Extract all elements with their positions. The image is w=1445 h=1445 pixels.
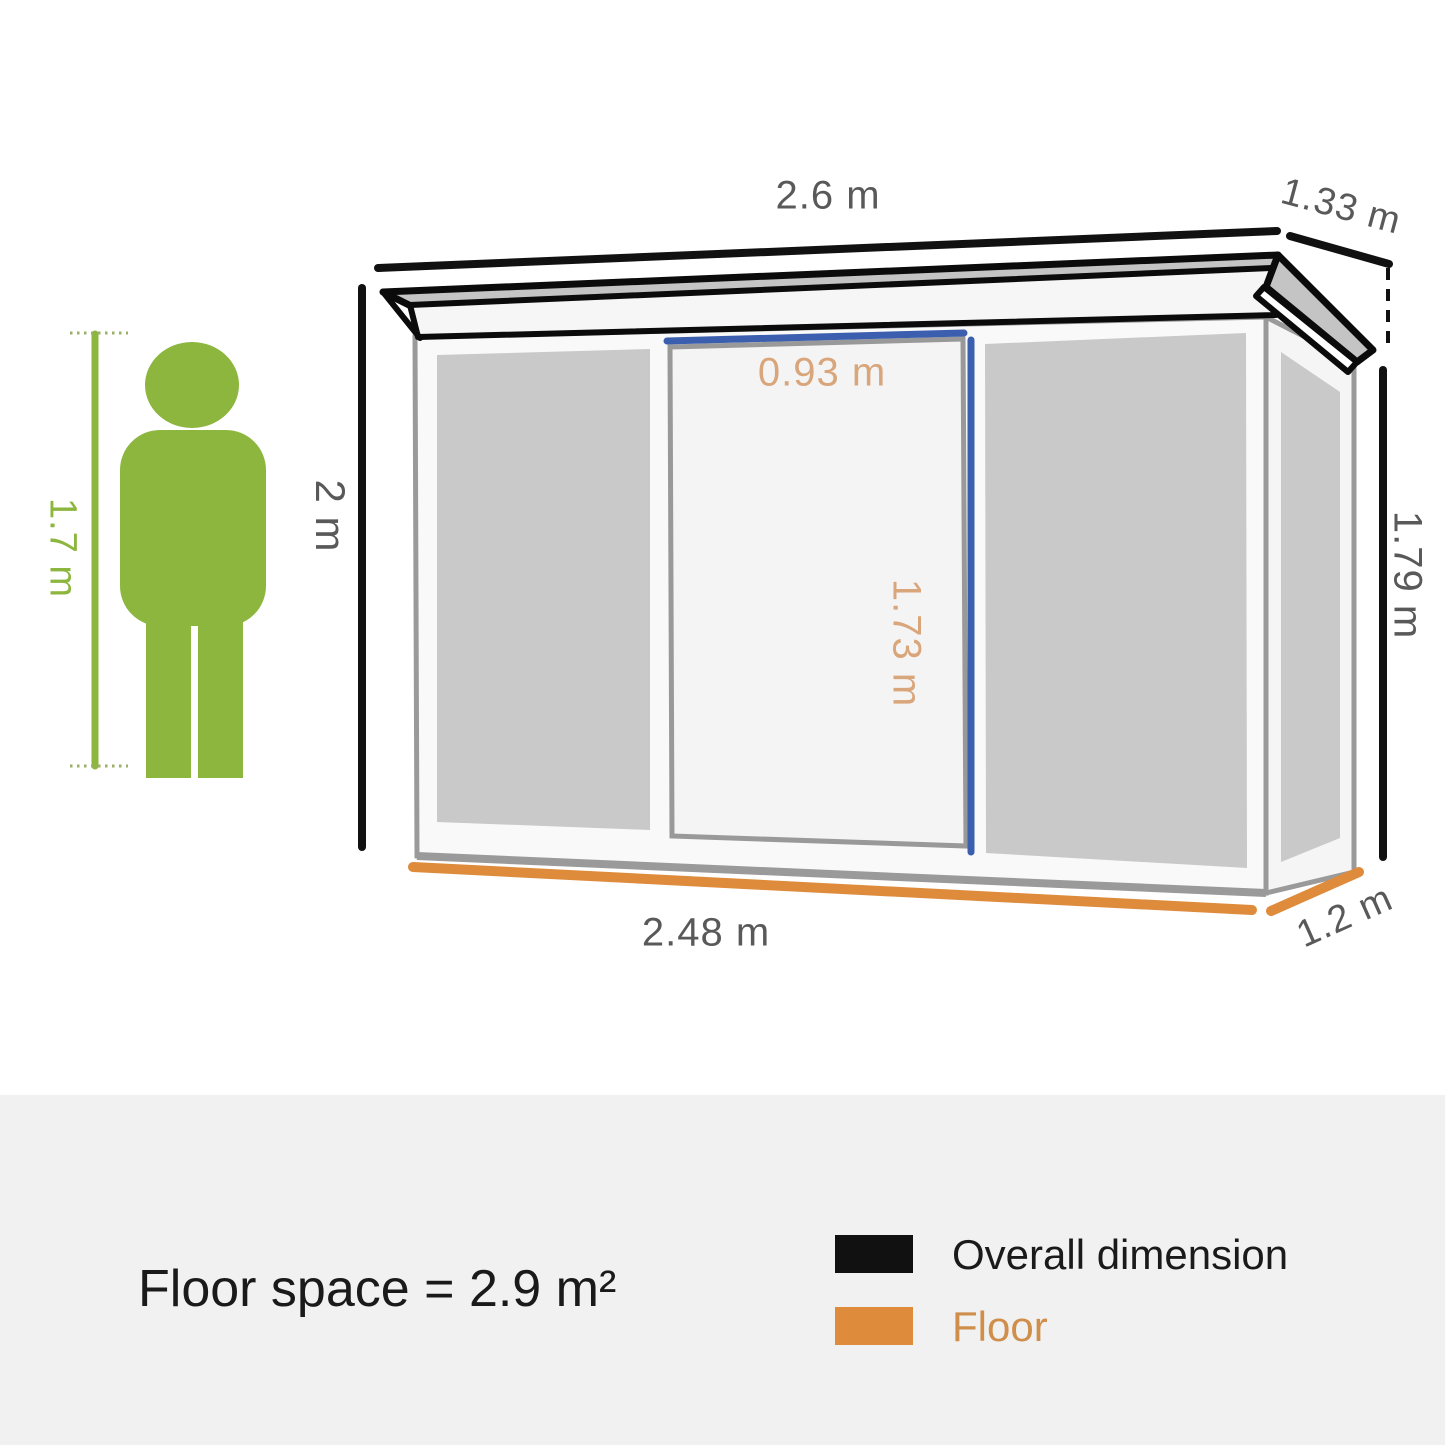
legend-label-overall-dimension: Overall dimension <box>952 1231 1288 1279</box>
door-height-label: 1.73 m <box>884 579 929 707</box>
person-torso <box>120 430 266 626</box>
shed-front-panel-left <box>437 349 650 830</box>
person-figure <box>120 342 266 778</box>
floor-space-text: Floor space = 2.9 m² <box>138 1259 616 1319</box>
floor-width-label: 2.48 m <box>642 911 770 956</box>
shed-drawing <box>0 0 1445 1445</box>
person-head <box>145 342 239 428</box>
legend-swatch-overall-dimension <box>835 1235 913 1273</box>
person-height-label: 1.7 m <box>41 498 84 598</box>
legend-swatch-floor <box>835 1307 913 1345</box>
shed-side-panel <box>1281 352 1340 862</box>
wall-height-left-label: 2 m <box>306 479 354 552</box>
wall-height-right-label: 1.79 m <box>1385 511 1430 639</box>
roof-width-label: 2.6 m <box>775 174 880 219</box>
legend-label-floor: Floor <box>952 1303 1048 1351</box>
shed-dimension-diagram: 2.6 m 1.33 m 2 m 1.79 m 0.93 m 1.73 m 2.… <box>0 0 1445 1445</box>
person-leg-left <box>146 600 191 778</box>
shed-front-panel-right <box>985 333 1247 868</box>
roof-depth-line <box>1290 236 1389 264</box>
door-width-label: 0.93 m <box>758 351 886 396</box>
person-leg-right <box>198 600 243 778</box>
